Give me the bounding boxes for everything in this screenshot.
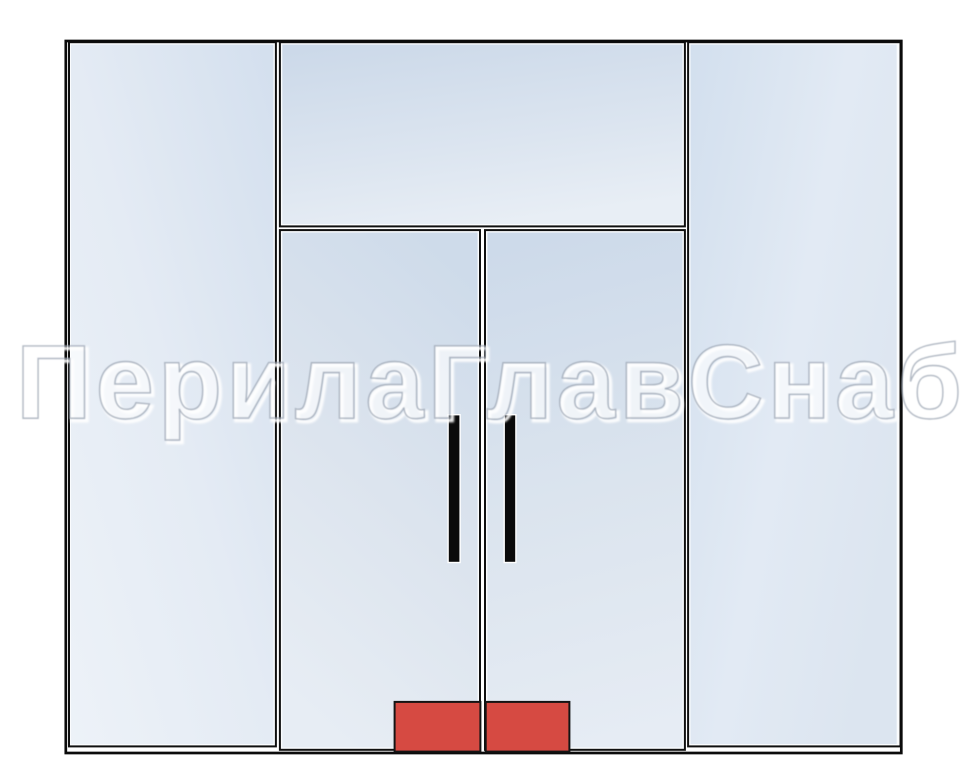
svg-text:ПерилаГлавСнаб: ПерилаГлавСнаб bbox=[16, 324, 966, 441]
